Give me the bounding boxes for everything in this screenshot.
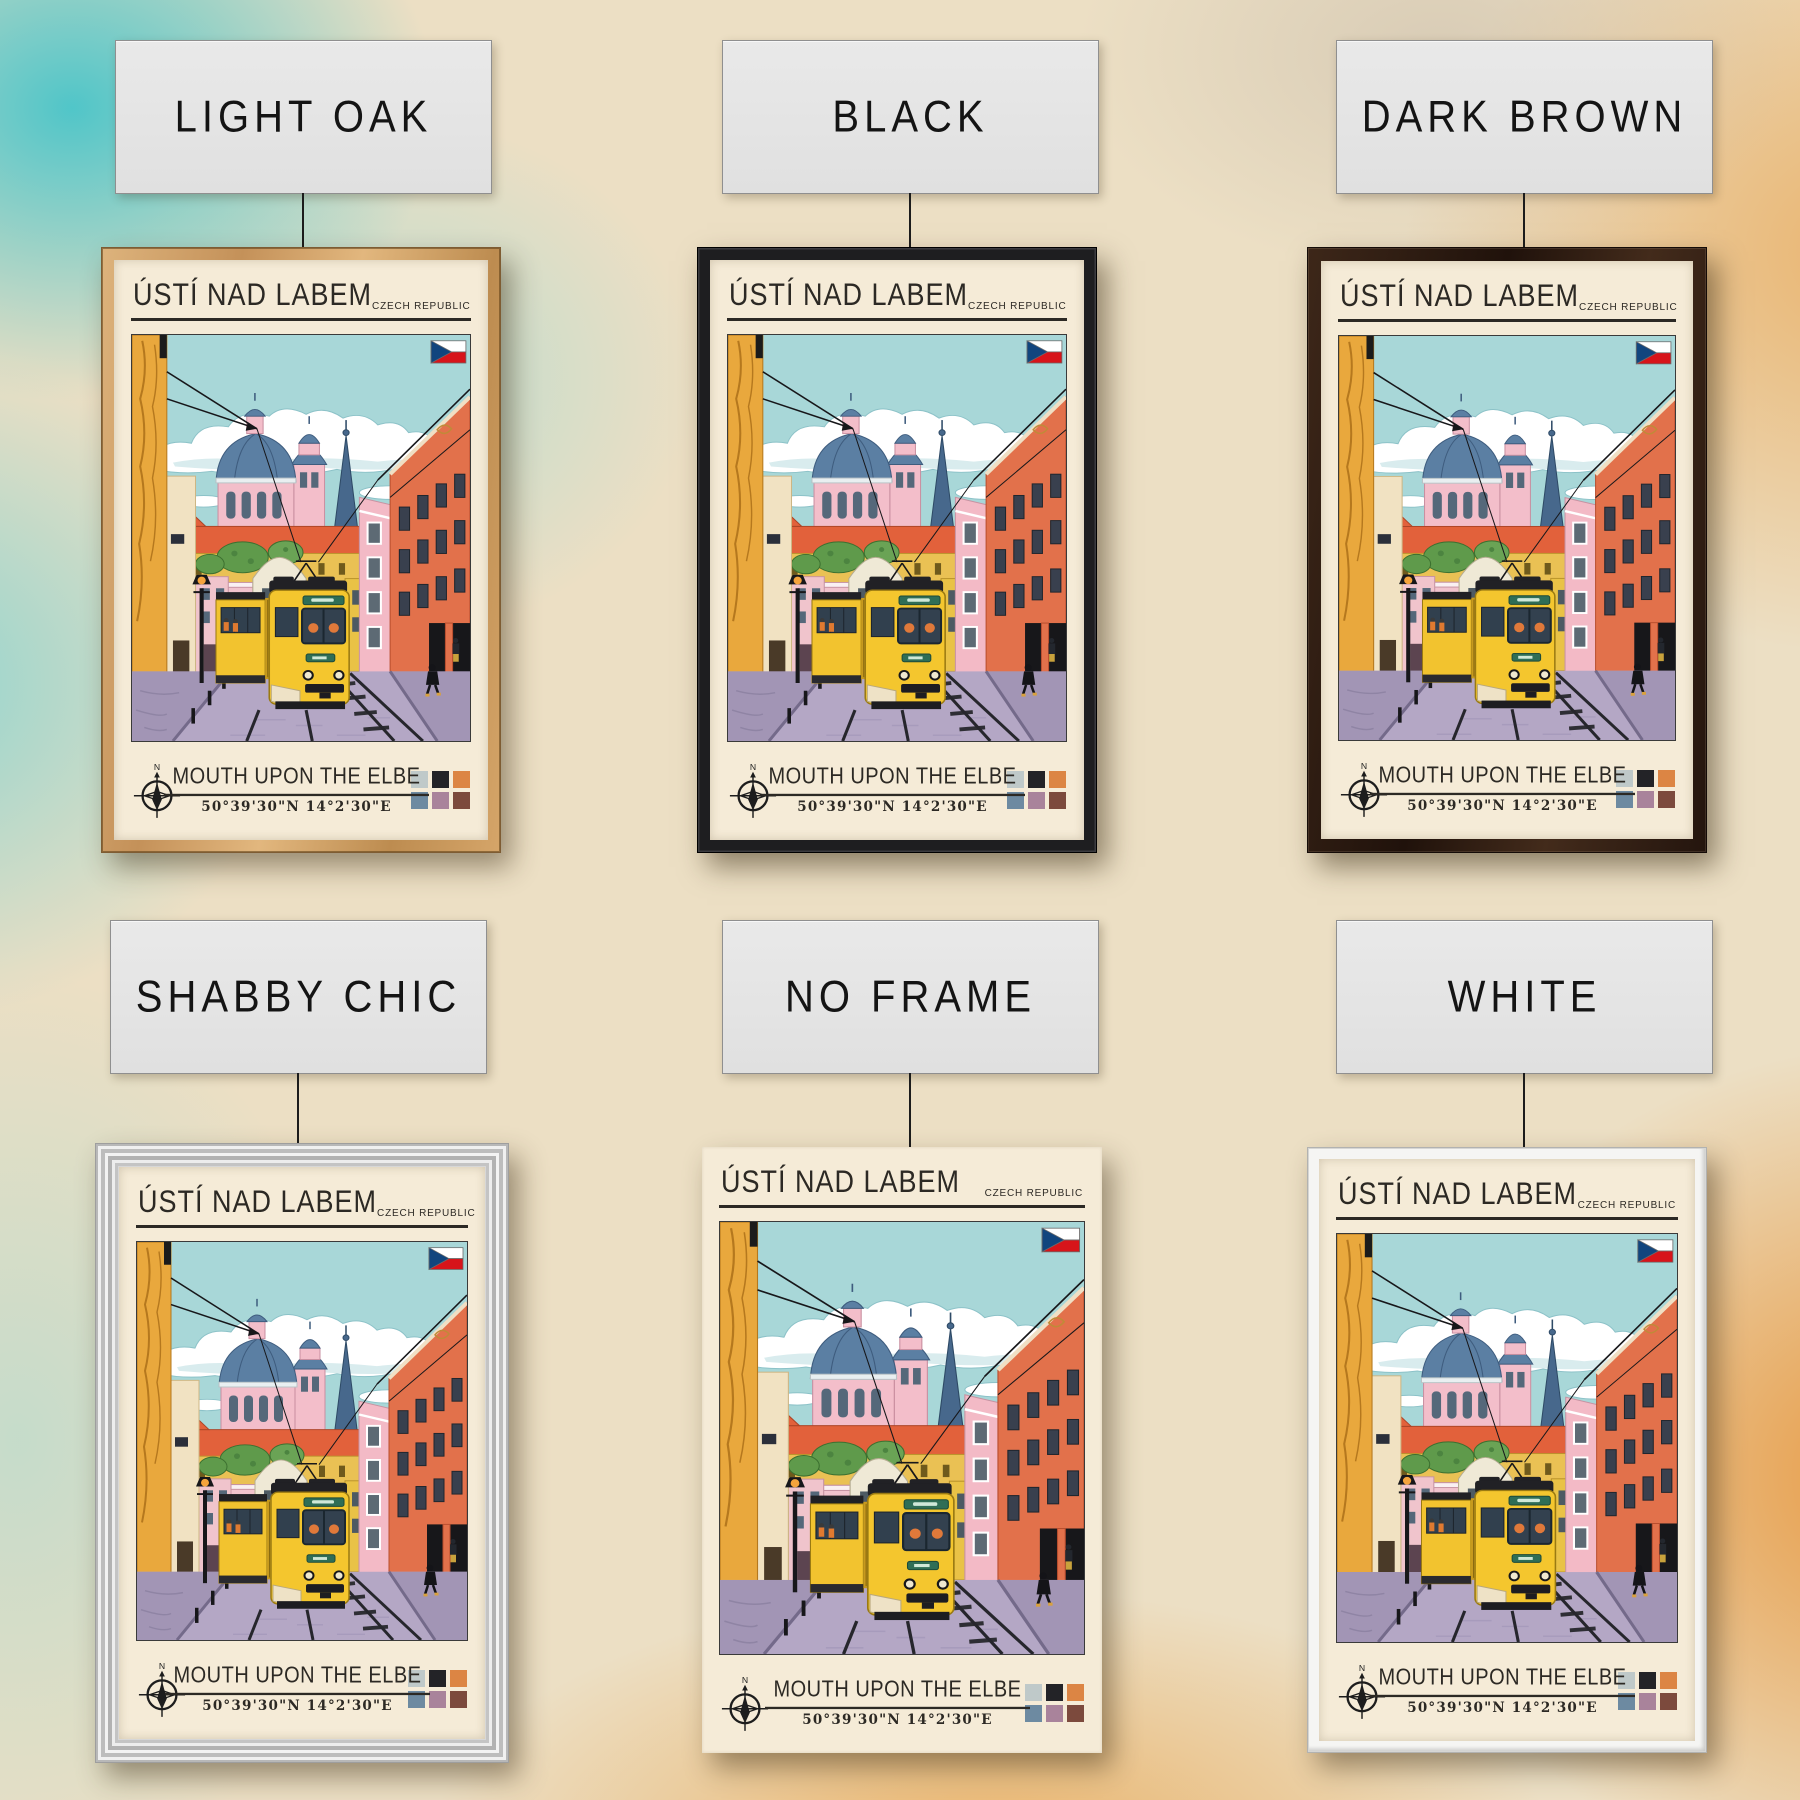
frame-option-label-text: DARK BROWN — [1362, 92, 1688, 142]
poster-subtitle-block: MOUTH UPON THE ELBE 50°39'30"N 14°2'30"E — [774, 1679, 1021, 1728]
frame-option-label: DARK BROWN — [1336, 40, 1713, 194]
poster: ÚSTÍ NAD LABEM CZECH REPUBLIC — [1321, 261, 1693, 839]
czech-flag-icon — [429, 1248, 463, 1270]
connector-line — [1523, 193, 1525, 247]
connector-line — [909, 1073, 911, 1147]
poster-title: ÚSTÍ NAD LABEM — [729, 277, 968, 313]
palette-swatch — [1660, 1672, 1677, 1689]
palette-swatch — [1658, 791, 1675, 808]
palette-swatch — [453, 792, 470, 809]
palette-swatch — [1637, 791, 1654, 808]
poster-footer: N MOUTH UPON THE ELBE 50°39'30"N 14°2'30… — [1336, 1652, 1678, 1730]
frame-option-label: LIGHT OAK — [115, 40, 492, 194]
frame-option-label-text: WHITE — [1448, 972, 1602, 1022]
framed-poster-white: ÚSTÍ NAD LABEM CZECH REPUBLIC — [1307, 1147, 1707, 1753]
poster-country-label: CZECH REPUBLIC — [377, 1208, 475, 1219]
poster-footer: N MOUTH UPON THE ELBE 50°39'30"N 14°2'30… — [136, 1650, 468, 1728]
right-pink-building — [359, 497, 392, 673]
palette-swatch — [1067, 1684, 1084, 1701]
right-pink-building — [359, 1401, 391, 1573]
palette-swatch — [1046, 1705, 1063, 1722]
poster-coordinates: 50°39'30"N 14°2'30"E — [1407, 1700, 1598, 1716]
palette-swatch — [1637, 770, 1654, 787]
palette-swatch — [453, 771, 470, 788]
poster: ÚSTÍ NAD LABEM CZECH REPUBLIC — [119, 1167, 485, 1739]
poster-subtitle: MOUTH UPON THE ELBE — [760, 763, 1024, 795]
poster-illustration — [1338, 335, 1676, 741]
palette-swatch — [1660, 1693, 1677, 1710]
connector-line — [302, 193, 304, 247]
poster-subtitle: MOUTH UPON THE ELBE — [1370, 762, 1634, 794]
color-palette-swatches — [1025, 1684, 1084, 1722]
poster-title: ÚSTÍ NAD LABEM — [138, 1184, 377, 1220]
poster-illustration — [727, 334, 1067, 742]
right-pink-building — [1566, 1397, 1599, 1574]
frame-option-label-text: BLACK — [832, 92, 988, 142]
poster-header: ÚSTÍ NAD LABEM CZECH REPUBLIC — [727, 270, 1067, 321]
tram-street-scene — [132, 335, 470, 741]
poster-footer: N MOUTH UPON THE ELBE 50°39'30"N 14°2'30… — [1338, 750, 1676, 828]
palette-swatch — [432, 771, 449, 788]
poster-title: ÚSTÍ NAD LABEM — [721, 1164, 960, 1200]
framed-poster-no-frame: ÚSTÍ NAD LABEM CZECH REPUBLIC — [702, 1147, 1102, 1753]
palette-swatch — [1658, 770, 1675, 787]
frame-option-label: BLACK — [722, 40, 1099, 194]
poster-subtitle-block: MOUTH UPON THE ELBE 50°39'30"N 14°2'30"E — [1393, 765, 1612, 814]
frame-option-label-text: LIGHT OAK — [175, 92, 433, 142]
poster-subtitle: MOUTH UPON THE ELBE — [165, 1662, 429, 1694]
framed-poster-light-oak: ÚSTÍ NAD LABEM CZECH REPUBLIC — [101, 247, 501, 853]
poster-subtitle-block: MOUTH UPON THE ELBE 50°39'30"N 14°2'30"E — [1391, 1667, 1614, 1716]
frame-option-label-text: NO FRAME — [785, 972, 1036, 1022]
framed-poster-dark-brown: ÚSTÍ NAD LABEM CZECH REPUBLIC — [1307, 247, 1707, 853]
compass-north-label: N — [1361, 761, 1367, 771]
connector-line — [909, 193, 911, 247]
tram-street-scene — [1339, 336, 1675, 740]
framed-poster-black: ÚSTÍ NAD LABEM CZECH REPUBLIC — [697, 247, 1097, 853]
poster-illustration — [1336, 1233, 1678, 1643]
poster-subtitle: MOUTH UPON THE ELBE — [765, 1676, 1029, 1708]
poster-title: ÚSTÍ NAD LABEM — [133, 277, 372, 313]
palette-swatch — [1049, 771, 1066, 788]
czech-flag-icon — [1636, 342, 1671, 364]
compass-north-label: N — [154, 762, 160, 772]
compass-north-label: N — [1359, 1663, 1365, 1673]
poster-footer: N MOUTH UPON THE ELBE 50°39'30"N 14°2'30… — [131, 751, 471, 829]
czech-flag-icon — [1027, 341, 1062, 363]
poster-subtitle-block: MOUTH UPON THE ELBE 50°39'30"N 14°2'30"E — [186, 766, 407, 815]
tram-street-scene — [1337, 1234, 1677, 1642]
poster: ÚSTÍ NAD LABEM CZECH REPUBLIC — [702, 1147, 1102, 1753]
frame-option-label-text: SHABBY CHIC — [136, 972, 461, 1022]
frame-option-label: NO FRAME — [722, 920, 1099, 1074]
tram-street-scene — [728, 335, 1066, 741]
czech-flag-icon — [1042, 1228, 1080, 1252]
compass-north-label: N — [742, 1675, 748, 1685]
palette-swatch — [1046, 1684, 1063, 1701]
poster-title: ÚSTÍ NAD LABEM — [1338, 1176, 1577, 1212]
poster-country-label: CZECH REPUBLIC — [1578, 1200, 1676, 1211]
palette-swatch — [432, 792, 449, 809]
poster-coordinates: 50°39'30"N 14°2'30"E — [202, 1698, 393, 1714]
palette-swatch — [450, 1691, 467, 1708]
poster-header: ÚSTÍ NAD LABEM CZECH REPUBLIC — [719, 1157, 1085, 1208]
czech-flag-icon — [431, 341, 466, 363]
poster-country-label: CZECH REPUBLIC — [372, 301, 470, 312]
poster-illustration — [719, 1221, 1085, 1655]
poster: ÚSTÍ NAD LABEM CZECH REPUBLIC — [114, 260, 488, 840]
poster-country-label: CZECH REPUBLIC — [968, 301, 1066, 312]
palette-swatch — [1067, 1705, 1084, 1722]
poster-footer: N MOUTH UPON THE ELBE 50°39'30"N 14°2'30… — [719, 1664, 1085, 1742]
tram-street-scene — [137, 1242, 467, 1640]
palette-swatch — [1028, 771, 1045, 788]
poster-coordinates: 50°39'30"N 14°2'30"E — [802, 1712, 993, 1728]
poster-illustration — [136, 1241, 468, 1641]
palette-swatch — [1049, 792, 1066, 809]
poster-country-label: CZECH REPUBLIC — [985, 1188, 1083, 1199]
palette-swatch — [1639, 1693, 1656, 1710]
palette-swatch — [450, 1670, 467, 1687]
poster-subtitle-block: MOUTH UPON THE ELBE 50°39'30"N 14°2'30"E — [782, 766, 1003, 815]
poster-header: ÚSTÍ NAD LABEM CZECH REPUBLIC — [1336, 1169, 1678, 1220]
poster-header: ÚSTÍ NAD LABEM CZECH REPUBLIC — [136, 1177, 468, 1228]
poster-subtitle: MOUTH UPON THE ELBE — [164, 763, 428, 795]
connector-line — [297, 1073, 299, 1147]
poster-footer: N MOUTH UPON THE ELBE 50°39'30"N 14°2'30… — [727, 751, 1067, 829]
czech-flag-icon — [1638, 1240, 1673, 1262]
right-pink-building — [1565, 498, 1598, 673]
palette-swatch — [1639, 1672, 1656, 1689]
frame-option-label: SHABBY CHIC — [110, 920, 487, 1074]
compass-north-label: N — [750, 762, 756, 772]
poster-header: ÚSTÍ NAD LABEM CZECH REPUBLIC — [1338, 271, 1676, 322]
page-background: { "product": { "name": "Ústí nad Labem t… — [0, 0, 1800, 1800]
right-pink-building — [955, 497, 988, 673]
poster-header: ÚSTÍ NAD LABEM CZECH REPUBLIC — [131, 270, 471, 321]
poster-subtitle-block: MOUTH UPON THE ELBE 50°39'30"N 14°2'30"E — [191, 1665, 404, 1714]
poster-subtitle: MOUTH UPON THE ELBE — [1370, 1664, 1634, 1696]
connector-line — [1523, 1073, 1525, 1147]
palette-swatch — [429, 1691, 446, 1708]
poster-illustration — [131, 334, 471, 742]
palette-swatch — [429, 1670, 446, 1687]
poster-coordinates: 50°39'30"N 14°2'30"E — [797, 799, 988, 815]
frame-option-label: WHITE — [1336, 920, 1713, 1074]
poster-coordinates: 50°39'30"N 14°2'30"E — [1407, 798, 1598, 814]
poster: ÚSTÍ NAD LABEM CZECH REPUBLIC — [710, 260, 1084, 840]
compass-icon: N — [720, 1672, 770, 1734]
poster-country-label: CZECH REPUBLIC — [1579, 302, 1677, 313]
tram-street-scene — [720, 1222, 1084, 1654]
framed-poster-shabby-chic: ÚSTÍ NAD LABEM CZECH REPUBLIC — [95, 1143, 509, 1763]
poster-coordinates: 50°39'30"N 14°2'30"E — [201, 799, 392, 815]
poster-title: ÚSTÍ NAD LABEM — [1340, 278, 1579, 314]
poster: ÚSTÍ NAD LABEM CZECH REPUBLIC — [1319, 1159, 1695, 1741]
right-pink-building — [965, 1395, 1000, 1582]
compass-north-label: N — [159, 1661, 165, 1671]
palette-swatch — [1028, 792, 1045, 809]
